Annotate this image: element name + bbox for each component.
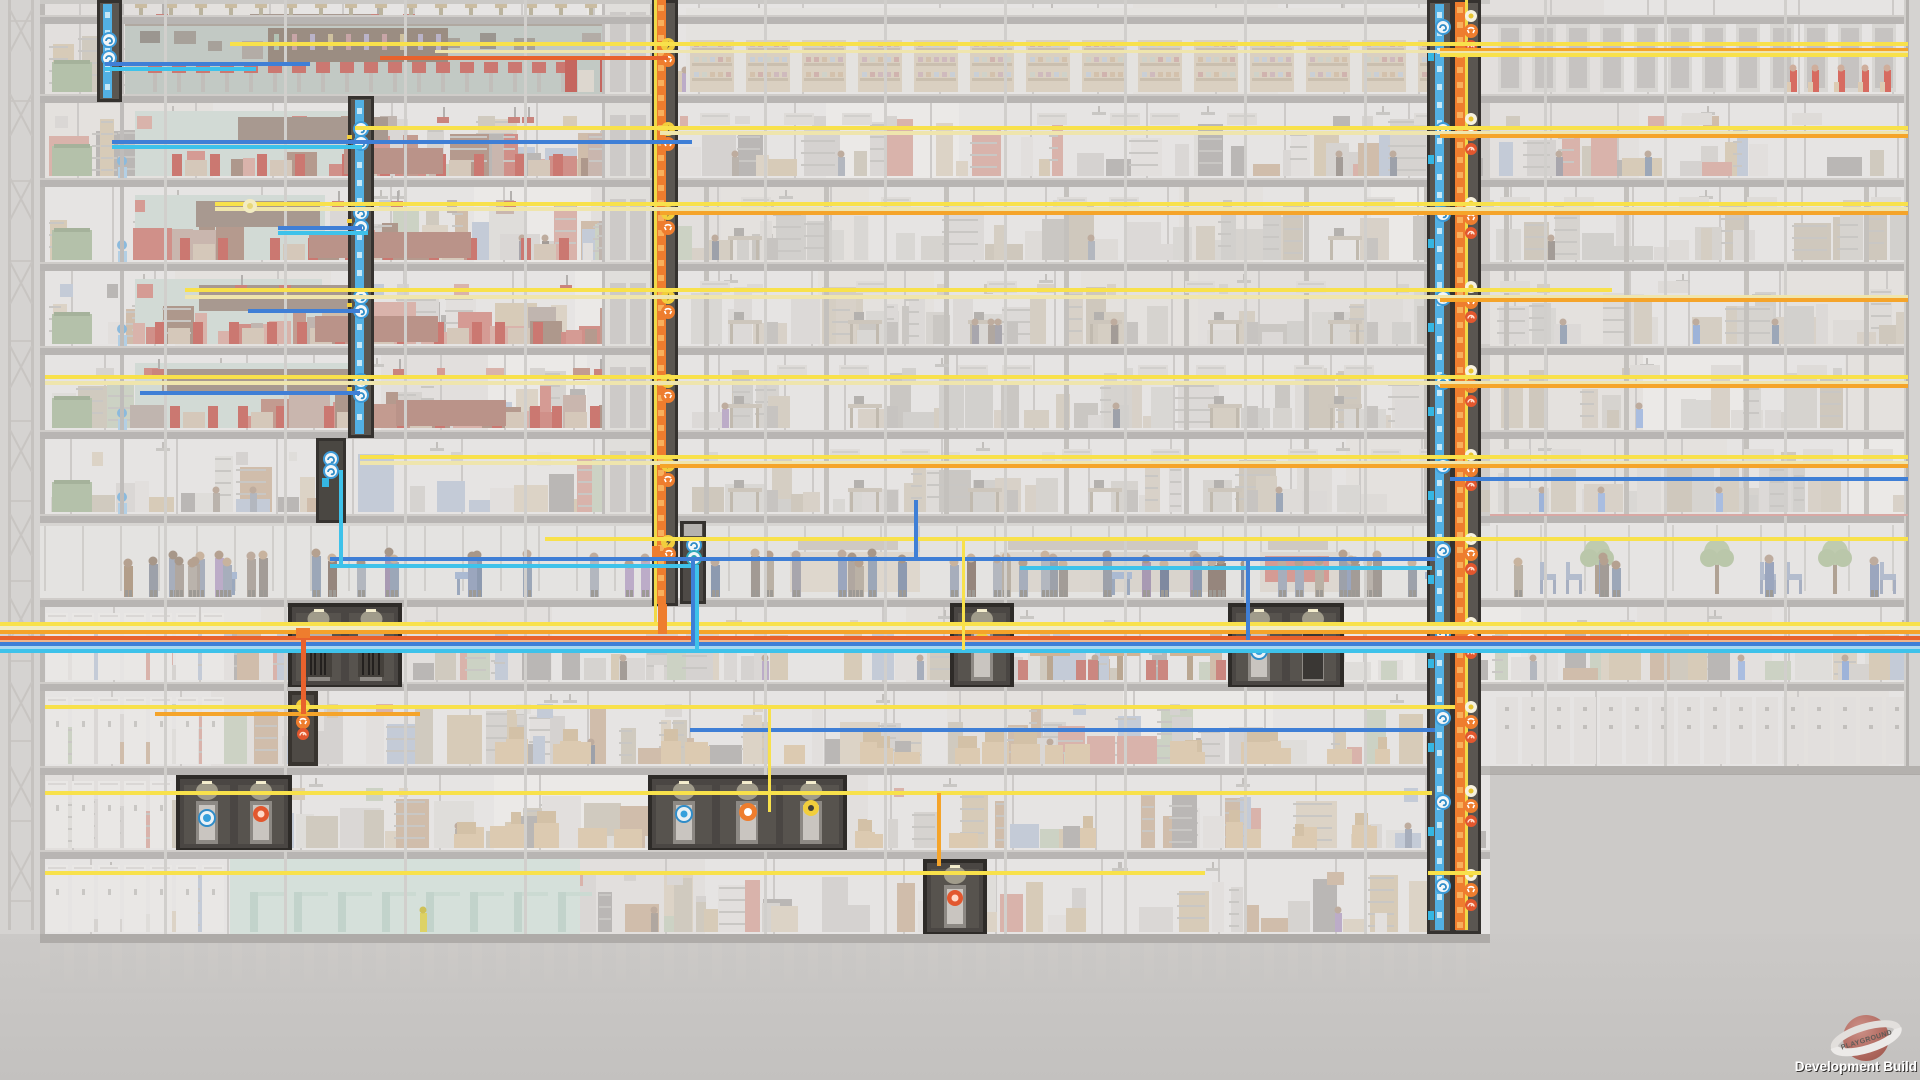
svg-text:Development Build: Development Build [1795, 1059, 1917, 1074]
